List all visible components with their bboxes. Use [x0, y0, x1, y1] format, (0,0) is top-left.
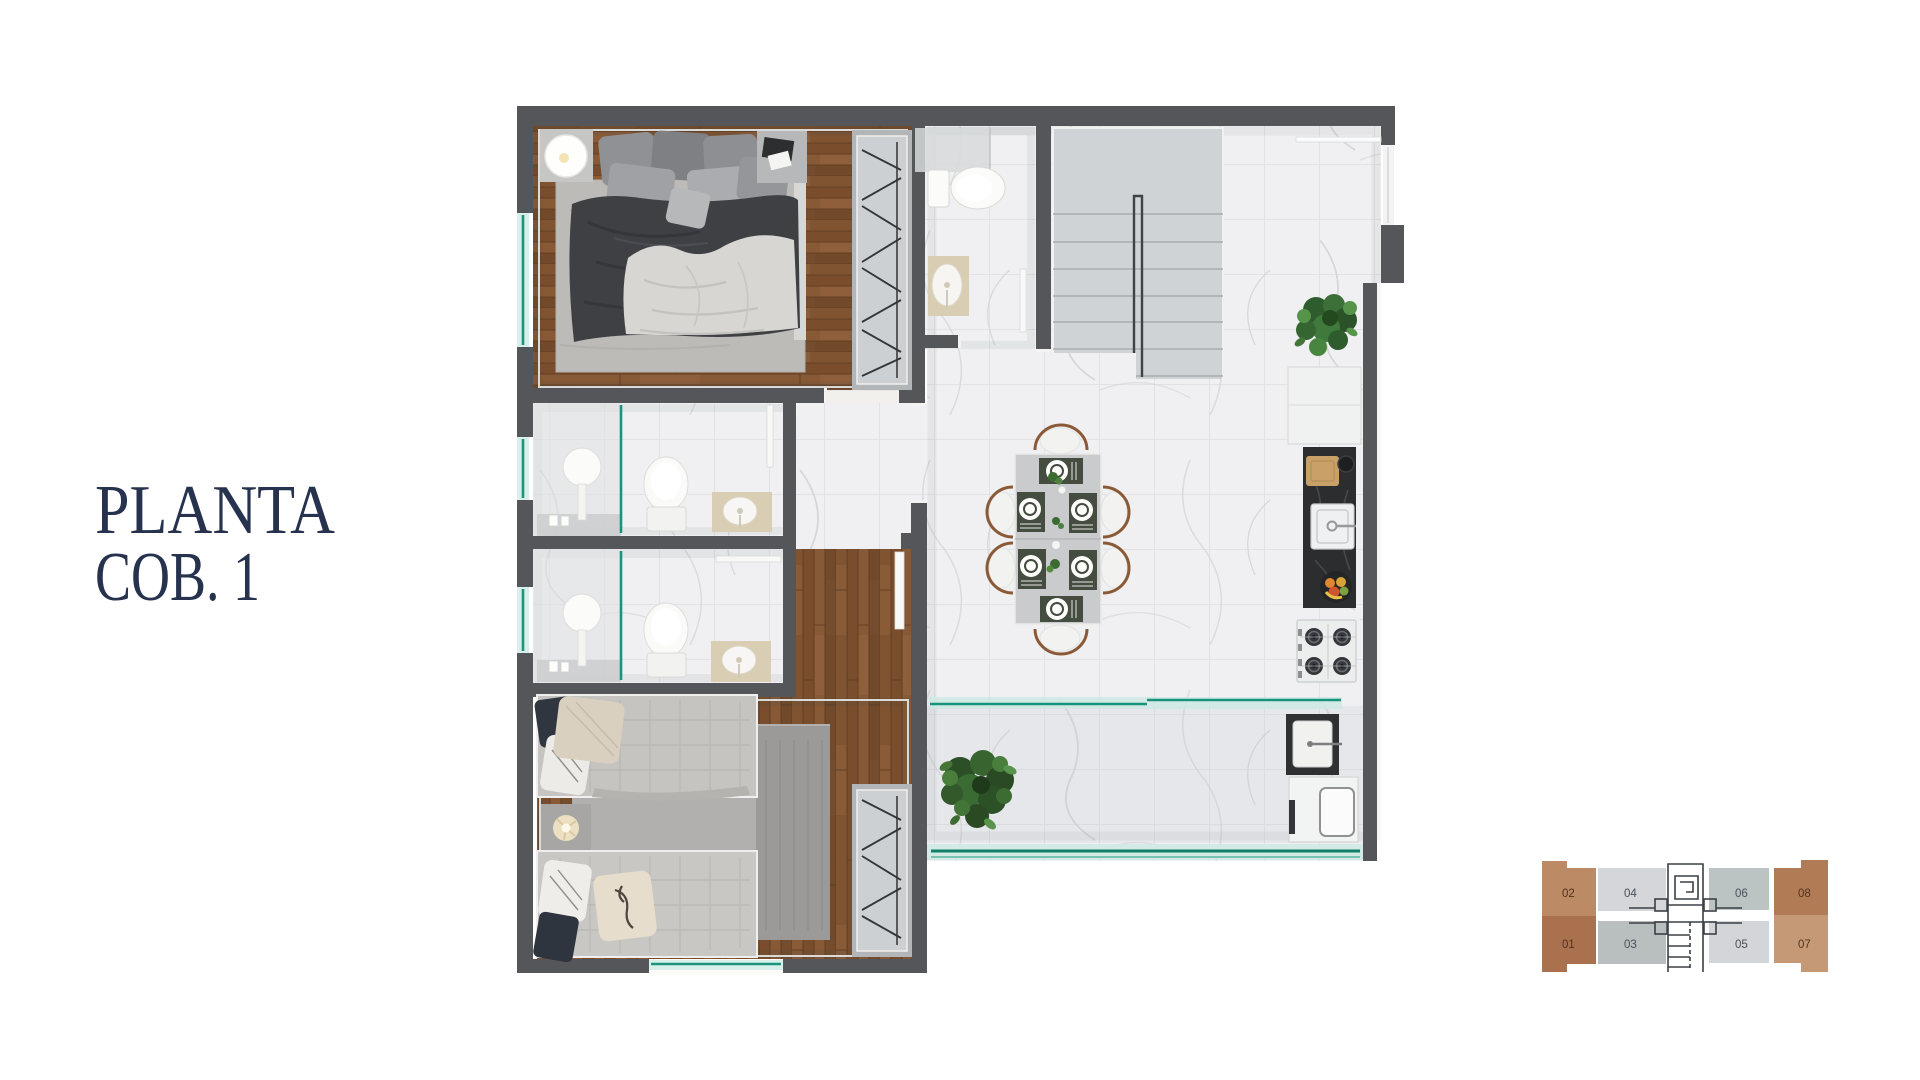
svg-text:06: 06 [1735, 888, 1748, 900]
svg-text:08: 08 [1798, 888, 1811, 900]
svg-text:COB. 1: COB. 1 [95, 539, 260, 616]
svg-text:05: 05 [1735, 939, 1748, 951]
svg-text:07: 07 [1798, 939, 1811, 951]
svg-text:01: 01 [1562, 939, 1575, 951]
svg-text:PLANTA: PLANTA [95, 472, 335, 549]
svg-text:03: 03 [1624, 939, 1637, 951]
svg-text:02: 02 [1562, 888, 1575, 900]
svg-text:04: 04 [1624, 888, 1637, 900]
